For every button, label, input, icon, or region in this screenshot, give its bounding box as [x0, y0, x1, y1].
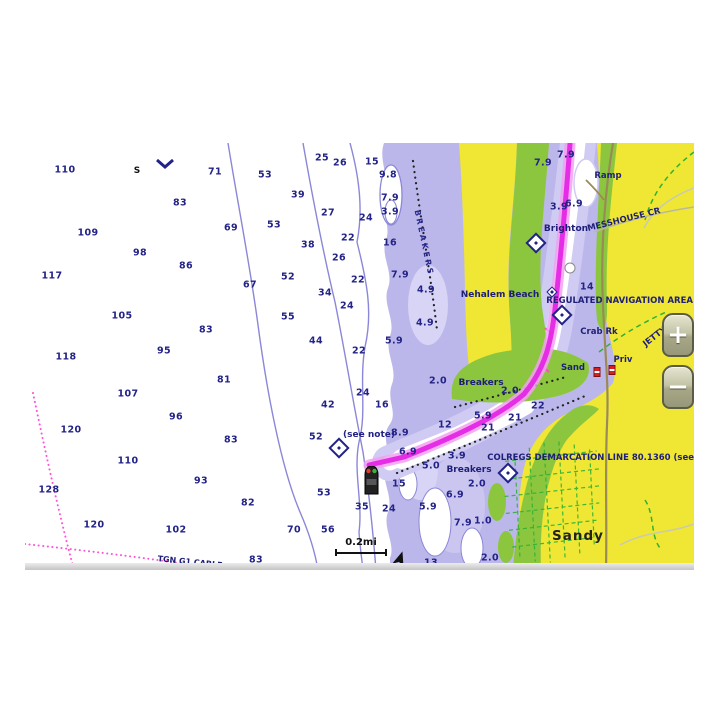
depth-sounding: 86	[179, 261, 193, 272]
depth-sounding: 7.9	[381, 193, 399, 204]
depth-sounding: 67	[243, 280, 257, 291]
map-label: COLREGS DEMARCATION LINE 80.1360 (see	[487, 453, 694, 463]
depth-sounding: 83	[173, 198, 187, 209]
depth-sounding: 34	[318, 288, 332, 299]
daymark-diamond-icon[interactable]	[548, 288, 556, 296]
map-label: Priv	[614, 355, 633, 365]
depth-sounding: 3.9	[448, 451, 466, 462]
depth-sounding: 24	[340, 301, 354, 312]
depth-sounding: 110	[117, 456, 138, 467]
map-label: Sand	[561, 363, 585, 373]
screen-bottom-edge	[25, 563, 694, 570]
depth-sounding: 26	[332, 253, 346, 264]
depth-sounding: 81	[217, 375, 231, 386]
depth-sounding: 5.9	[385, 336, 403, 347]
scale-bar: 0.2mi	[332, 537, 390, 556]
map-label: Sandy	[552, 528, 604, 544]
depth-sounding: 53	[258, 170, 272, 181]
depth-sounding: 22	[351, 275, 365, 286]
route-point-icon[interactable]	[565, 263, 576, 274]
depth-sounding: 38	[301, 240, 315, 251]
diamond-shape	[497, 462, 518, 483]
diamond-shape	[546, 286, 557, 297]
depth-sounding: 109	[77, 228, 98, 239]
chartplotter-screenshot: 0.2mi + − 110718310969988611767105831189…	[0, 0, 720, 720]
depth-sounding: 24	[382, 504, 396, 515]
diamond-shape	[525, 232, 546, 253]
scale-bar-line	[335, 549, 387, 556]
depth-sounding: 3.9	[550, 202, 568, 213]
map-label: Brighton	[544, 224, 588, 234]
depth-sounding: 107	[117, 389, 138, 400]
depth-sounding: 5.9	[474, 411, 492, 422]
depth-sounding: 9.8	[379, 170, 397, 181]
depth-sounding: 22	[352, 346, 366, 357]
depth-sounding: 128	[38, 485, 59, 496]
depth-sounding: 83	[199, 325, 213, 336]
depth-sounding: 83	[224, 435, 238, 446]
depth-sounding: 70	[287, 525, 301, 536]
depth-sounding: 7.9	[557, 150, 575, 161]
depth-sounding: 4.9	[417, 285, 435, 296]
depth-sounding: 117	[41, 271, 62, 282]
depth-sounding: 96	[169, 412, 183, 423]
depth-sounding: 44	[309, 336, 323, 347]
zoom-out-button[interactable]: −	[662, 365, 694, 409]
depth-sounding: 22	[341, 233, 355, 244]
depth-sounding: 16	[383, 238, 397, 249]
plus-icon: +	[667, 322, 689, 348]
map-label: S	[134, 166, 140, 176]
map-label: Ramp	[594, 171, 621, 181]
depth-sounding: 105	[111, 311, 132, 322]
depth-sounding: 52	[309, 432, 323, 443]
depth-sounding: 120	[60, 425, 81, 436]
depth-sounding: 93	[194, 476, 208, 487]
depth-sounding: 21	[481, 423, 495, 434]
depth-sounding: 95	[157, 346, 171, 357]
depth-sounding: 7.9	[454, 518, 472, 529]
depth-sounding: 120	[83, 520, 104, 531]
map-label: Crab Rk	[580, 327, 617, 337]
daymark-diamond-icon[interactable]	[332, 441, 347, 456]
daymark-diamond-icon[interactable]	[501, 466, 516, 481]
depth-sounding: 110	[54, 165, 75, 176]
diamond-shape	[328, 437, 349, 458]
depth-sounding: 1.0	[474, 516, 492, 527]
depth-sounding: 42	[321, 400, 335, 411]
depth-sounding: 56	[321, 525, 335, 536]
depth-sounding: 14	[580, 282, 594, 293]
diamond-shape	[551, 304, 572, 325]
depth-sounding: 102	[165, 525, 186, 536]
depth-sounding: 52	[281, 272, 295, 283]
depth-sounding: 22	[531, 401, 545, 412]
depth-sounding: 3.9	[381, 207, 399, 218]
map-label: (see note)	[343, 430, 395, 440]
depth-sounding: 2.0	[501, 386, 519, 397]
minus-icon: −	[667, 374, 689, 400]
map-label: Breakers	[446, 465, 491, 475]
depth-sounding: 82	[241, 498, 255, 509]
depth-sounding: 7.9	[391, 270, 409, 281]
depth-sounding: 98	[133, 248, 147, 259]
map-label: Nehalem Beach	[461, 290, 540, 300]
depth-sounding: 2.0	[468, 479, 486, 490]
depth-sounding: 6.9	[399, 447, 417, 458]
depth-sounding: 27	[321, 208, 335, 219]
depth-sounding: 5.9	[419, 502, 437, 513]
beacon-icon[interactable]	[594, 367, 601, 377]
zoom-in-button[interactable]: +	[662, 313, 694, 357]
beacon-icon[interactable]	[609, 365, 616, 375]
depth-sounding: 6.9	[446, 490, 464, 501]
chart-map[interactable]: 0.2mi + − 110718310969988611767105831189…	[25, 143, 694, 570]
depth-sounding: 25	[315, 153, 329, 164]
depth-sounding: 4.9	[416, 318, 434, 329]
depth-sounding: 26	[333, 158, 347, 169]
depth-sounding: 55	[281, 312, 295, 323]
depth-sounding: 69	[224, 223, 238, 234]
shallow-light-patch	[408, 265, 448, 345]
depth-sounding: 24	[359, 213, 373, 224]
depth-sounding: 2.0	[481, 553, 499, 564]
map-label: REGULATED NAVIGATION AREA	[546, 296, 693, 306]
depth-sounding: 39	[291, 190, 305, 201]
depth-sounding: 5.0	[422, 461, 440, 472]
depth-sounding: 2.0	[429, 376, 447, 387]
daymark-diamond-icon[interactable]	[529, 236, 544, 251]
daymark-diamond-icon[interactable]	[555, 308, 570, 323]
depth-sounding: 53	[317, 488, 331, 499]
map-label: Breakers	[458, 378, 503, 388]
depth-sounding: 24	[356, 388, 370, 399]
depth-sounding: 21	[508, 413, 522, 424]
depth-sounding: 12	[438, 420, 452, 431]
depth-sounding: 15	[365, 157, 379, 168]
depth-sounding: 71	[208, 167, 222, 178]
depth-sounding: 16	[375, 400, 389, 411]
depth-sounding: 7.9	[534, 158, 552, 169]
depth-sounding: 118	[55, 352, 76, 363]
depth-sounding: 15	[392, 479, 406, 490]
scale-bar-label: 0.2mi	[332, 537, 390, 548]
depth-sounding: 53	[267, 220, 281, 231]
depth-sounding: 35	[355, 502, 369, 513]
